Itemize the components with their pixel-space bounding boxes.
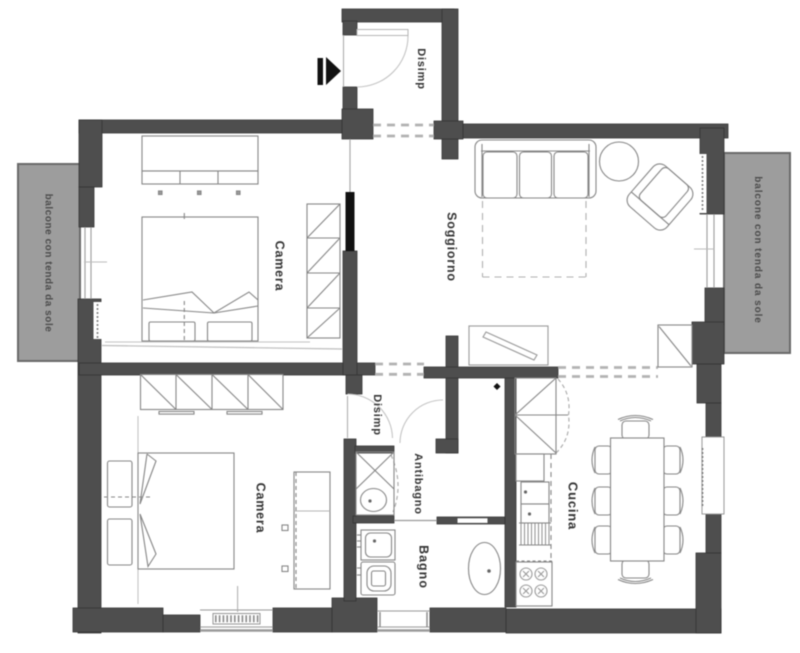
svg-text:Soggiorno: Soggiorno [445, 212, 459, 282]
svg-text:Bagno: Bagno [417, 545, 431, 589]
svg-text:Disimp: Disimp [415, 48, 427, 89]
svg-text:Camera: Camera [273, 241, 287, 292]
svg-text:Disimp: Disimp [371, 394, 383, 435]
svg-text:Cucina: Cucina [565, 482, 580, 530]
svg-text:balcone con tenda da sole: balcone con tenda da sole [752, 176, 763, 324]
svg-text:balcone con tenda da sole: balcone con tenda da sole [43, 194, 54, 333]
svg-text:Camera: Camera [254, 483, 268, 534]
svg-text:Antibagno: Antibagno [412, 453, 424, 515]
